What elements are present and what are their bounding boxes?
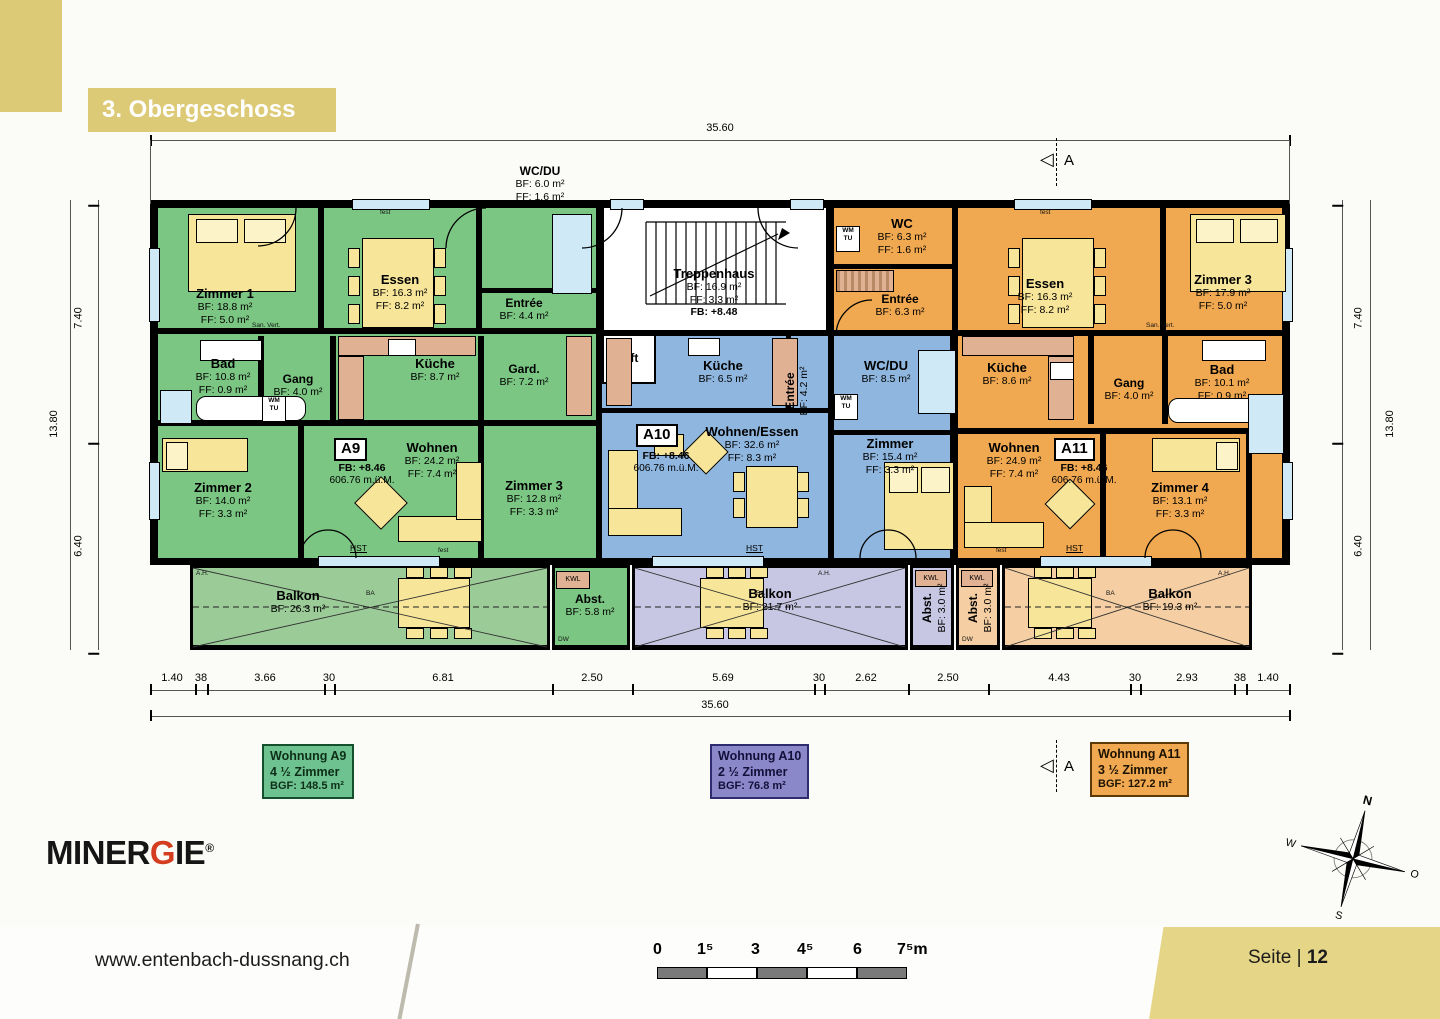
chair: [1034, 628, 1052, 639]
section-marker-top: A: [1064, 152, 1074, 169]
room-label-wohnen-a9: Wohnen BF: 24.2 m² FF: 7.4 m²: [378, 440, 486, 480]
chair: [430, 628, 448, 639]
cabinet: [566, 336, 592, 416]
page-number: Seite | 12: [1248, 947, 1328, 969]
scale-label: 0: [653, 941, 662, 959]
washer-dryer: WMTU: [262, 396, 286, 422]
room-label-zimmer3-a9: Zimmer 3 BF: 12.8 m² FF: 3.3 m²: [482, 478, 586, 518]
pillow: [196, 219, 238, 243]
room-label-treppenhaus: Treppenhaus BF: 16.9 m² FF: 3.3 m² FB: +…: [630, 266, 798, 318]
chair: [434, 248, 446, 268]
scale-label: 6: [853, 941, 862, 959]
sofa: [608, 508, 682, 536]
dim-value: 2.62: [846, 672, 886, 684]
legend-a10: Wohnung A10 2 ½ Zimmer BGF: 76.8 m²: [710, 744, 809, 799]
page-title: 3. Obergeschoss: [88, 88, 336, 132]
chair: [797, 498, 809, 518]
washer-dryer: WMTU: [834, 394, 858, 420]
pillow: [166, 442, 188, 470]
dim-value: 5.69: [703, 672, 743, 684]
room-label-zimmer-a10: Zimmer BF: 15.4 m² FF: 3.3 m²: [838, 436, 942, 476]
compass-s: S: [1334, 909, 1344, 922]
room-label-wohnen-essen-a10: Wohnen/Essen BF: 32.6 m² FF: 8.3 m²: [688, 424, 816, 464]
chair: [454, 628, 472, 639]
window: [652, 556, 764, 567]
chair: [706, 628, 724, 639]
chair: [406, 567, 424, 578]
stove: [388, 339, 416, 356]
dim-line-right: [1342, 200, 1343, 650]
section-line: [1056, 138, 1057, 186]
room-label-essen-a11: Essen BF: 16.3 m² FF: 8.2 m²: [980, 276, 1110, 316]
wall: [298, 426, 304, 558]
kitchen-counter: [962, 336, 1074, 356]
window: [318, 556, 440, 567]
wall: [952, 208, 958, 330]
pillow: [244, 219, 286, 243]
shower: [552, 214, 592, 294]
dim-right-lower: 6.40: [1353, 535, 1365, 556]
room-label-essen-a9: Essen BF: 16.3 m² FF: 8.2 m²: [335, 272, 465, 312]
dim-top-total: 35.60: [690, 122, 750, 134]
annotation-ba: BA: [366, 590, 375, 597]
chair: [454, 567, 472, 578]
dim-line-top: [150, 140, 1290, 141]
dim-bottom-total: 35.60: [685, 699, 745, 711]
scale-segment: [857, 967, 907, 979]
chair: [1034, 567, 1052, 578]
compass-w: W: [1284, 837, 1298, 851]
chair: [1056, 567, 1074, 578]
apartment-badge-a11: A11: [1054, 438, 1095, 461]
apartment-badge-a10: A10: [636, 424, 678, 447]
legend-a11: Wohnung A11 3 ½ Zimmer BGF: 127.2 m²: [1090, 742, 1189, 797]
annotation-dw: DW: [962, 636, 973, 643]
room-label-kueche-a9: Küche BF: 8.7 m²: [382, 356, 488, 384]
annotation-dw: DW: [558, 636, 569, 643]
dim-line-right-total: [1370, 200, 1371, 650]
chair: [728, 567, 746, 578]
chair: [1078, 567, 1096, 578]
dim-left-total: 13.80: [48, 410, 60, 438]
double-sink: [1202, 340, 1266, 361]
annotation-san-vert: San. Vert.: [252, 322, 281, 329]
annotation-fest: fest: [996, 547, 1006, 554]
wall: [318, 208, 324, 334]
label-wcdu-external: WC/DU BF: 6.0 m² FF: 1.6 m²: [498, 164, 582, 203]
dim-value: 38: [184, 672, 218, 684]
window: [610, 199, 644, 210]
section-marker-bottom: A: [1064, 758, 1074, 775]
window: [790, 199, 824, 210]
footer-band: www.entenbach-dussnang.ch Seite | 12 0 1…: [0, 927, 1440, 1019]
scale-segment: [757, 967, 807, 979]
dim-ext: [1289, 140, 1290, 204]
section-flag-icon: ◁: [1040, 150, 1054, 168]
annotation-hst: HST: [1066, 543, 1083, 553]
pillow: [1196, 219, 1234, 243]
scale-label: 4⁵: [797, 941, 813, 959]
dim-value: 30: [802, 672, 836, 684]
scale-segment: [707, 967, 757, 979]
annotation-ah: A.H.: [1218, 570, 1231, 577]
wall: [828, 336, 834, 558]
gold-corner-strip: [0, 0, 62, 112]
room-label-gang-a11: Gang BF: 4.0 m²: [1084, 376, 1174, 403]
dim-value: 30: [312, 672, 346, 684]
apartment-badge-a9: A9: [334, 438, 367, 461]
chair: [733, 498, 745, 518]
annotation-ah: A.H.: [196, 570, 209, 577]
wall: [1100, 434, 1106, 558]
chair: [1056, 628, 1074, 639]
dim-line-bottom-total: [150, 716, 1290, 717]
room-label-gard-a9: Gard. BF: 7.2 m²: [482, 362, 566, 389]
shower: [1248, 394, 1284, 454]
chair: [1094, 248, 1106, 268]
annotation-fest: fest: [1040, 209, 1050, 216]
bathtub: [196, 396, 306, 421]
wall: [834, 264, 956, 269]
dim-value: 4.43: [1039, 672, 1079, 684]
dim-value: 2.50: [572, 672, 612, 684]
dim-right-upper: 7.40: [1353, 307, 1365, 328]
room-label-zimmer2-a9: Zimmer 2 BF: 14.0 m² FF: 3.3 m²: [160, 480, 286, 520]
chair: [733, 472, 745, 492]
brochure-page: { "banner": {"title": "3. Obergeschoss"}…: [0, 0, 1440, 1019]
compass-n: N: [1361, 793, 1373, 809]
room-label-abst-a10: Abst. BF: 3.0 m²: [918, 563, 946, 653]
chair: [1078, 628, 1096, 639]
room-label-entree-a11: Entrée BF: 6.3 m²: [850, 292, 950, 319]
balcony-table: [398, 578, 470, 628]
window: [1282, 462, 1293, 520]
room-label-entree-a9: Entrée BF: 4.4 m²: [476, 296, 572, 323]
dim-value: 3.66: [245, 672, 285, 684]
annotation-hst: HST: [746, 543, 763, 553]
compass-rose-icon: N S W O: [1278, 788, 1428, 928]
window: [1014, 199, 1092, 210]
room-name: WC/DU: [498, 164, 582, 178]
scale-label: 1⁵: [697, 941, 713, 959]
annotation-fest: fest: [438, 547, 448, 554]
dining-table: [746, 466, 798, 528]
scale-bar: 0 1⁵ 3 4⁵ 6 7⁵m: [645, 941, 935, 1001]
dim-right-total: 13.80: [1384, 410, 1396, 438]
room-label-wc-a11: WC BF: 6.3 m² FF: 1.6 m²: [852, 216, 952, 256]
pillow: [1216, 442, 1238, 470]
scale-segment: [807, 967, 857, 979]
chair: [1008, 248, 1020, 268]
room-label-abst-a9: Abst. BF: 5.8 m²: [548, 592, 632, 619]
dim-ext: [150, 140, 151, 204]
compass-o: O: [1409, 868, 1420, 882]
room-label-kueche-a10: Küche BF: 6.5 m²: [668, 358, 778, 386]
dim-left-upper: 7.40: [73, 307, 85, 328]
chair: [750, 567, 768, 578]
dim-value: 30: [1118, 672, 1152, 684]
room-label-balkon-a11: Balkon BF: 19.3 m²: [1100, 586, 1240, 614]
room-label-balkon-a9: Balkon BF: 26.3 m²: [228, 588, 368, 616]
dim-left-lower: 6.40: [73, 535, 85, 556]
chair: [348, 248, 360, 268]
annotation-hst: HST: [350, 543, 367, 553]
room-label-gang-a9: Gang BF: 4.0 m²: [258, 372, 338, 399]
pillow: [1240, 219, 1278, 243]
room-label-zimmer1-a9: Zimmer 1 BF: 18.8 m² FF: 5.0 m²: [160, 286, 290, 326]
chair: [706, 567, 724, 578]
kitchen-counter: [338, 356, 364, 420]
annotation-ba: BA: [1106, 590, 1115, 597]
window: [1040, 556, 1152, 567]
wall: [158, 328, 596, 334]
stove: [688, 338, 720, 356]
chair: [728, 628, 746, 639]
annotation-ba: BA: [756, 590, 765, 597]
chair: [430, 567, 448, 578]
radiator: [836, 270, 894, 292]
dim-line-left-total: [70, 200, 71, 650]
window: [149, 248, 160, 322]
room-label-zimmer4-a11: Zimmer 4 BF: 13.1 m² FF: 3.3 m²: [1120, 480, 1240, 520]
dim-line-left: [98, 200, 99, 650]
chair: [750, 628, 768, 639]
scale-label: 3: [751, 941, 760, 959]
wall: [834, 430, 952, 435]
room-label-kueche-a11: Küche BF: 8.6 m²: [952, 360, 1062, 388]
window: [352, 199, 430, 210]
wall: [958, 428, 1282, 434]
dim-line-bottom-chain: [150, 690, 1290, 691]
annotation-ah: A.H.: [818, 570, 831, 577]
room-label-balkon-a10: Balkon BF: 21.7 m²: [700, 586, 840, 614]
balcony-table: [1028, 578, 1092, 628]
section-flag-icon: ◁: [1040, 756, 1054, 774]
kitchen-counter: [606, 338, 632, 406]
logo-red-g: G: [150, 834, 175, 871]
minergie-logo: MINERGIE®: [46, 834, 214, 872]
website-url: www.entenbach-dussnang.ch: [95, 949, 350, 972]
ventilation-unit: KWL: [556, 571, 590, 589]
dim-value: 2.50: [928, 672, 968, 684]
legend-a9: Wohnung A9 4 ½ Zimmer BGF: 148.5 m²: [262, 744, 354, 799]
room-label-wcdu-a10: WC/DU BF: 8.5 m²: [836, 358, 936, 386]
dim-value: 6.81: [423, 672, 463, 684]
room-label-bad-a11: Bad BF: 10.1 m² FF: 0.9 m²: [1170, 362, 1274, 402]
window: [149, 462, 160, 520]
scale-label: 7⁵m: [897, 941, 928, 959]
dim-value: 2.93: [1167, 672, 1207, 684]
annotation-fest: fest: [380, 209, 390, 216]
chair: [406, 628, 424, 639]
chair: [797, 472, 809, 492]
dim-value: 1.40: [1248, 672, 1288, 684]
scale-segment: [657, 967, 707, 979]
section-line: [1056, 740, 1057, 792]
sofa: [964, 522, 1044, 548]
annotation-san-vert: San. Vert.: [1146, 322, 1175, 329]
room-label-zimmer3-a11: Zimmer 3 BF: 17.9 m² FF: 5.0 m²: [1162, 272, 1284, 312]
